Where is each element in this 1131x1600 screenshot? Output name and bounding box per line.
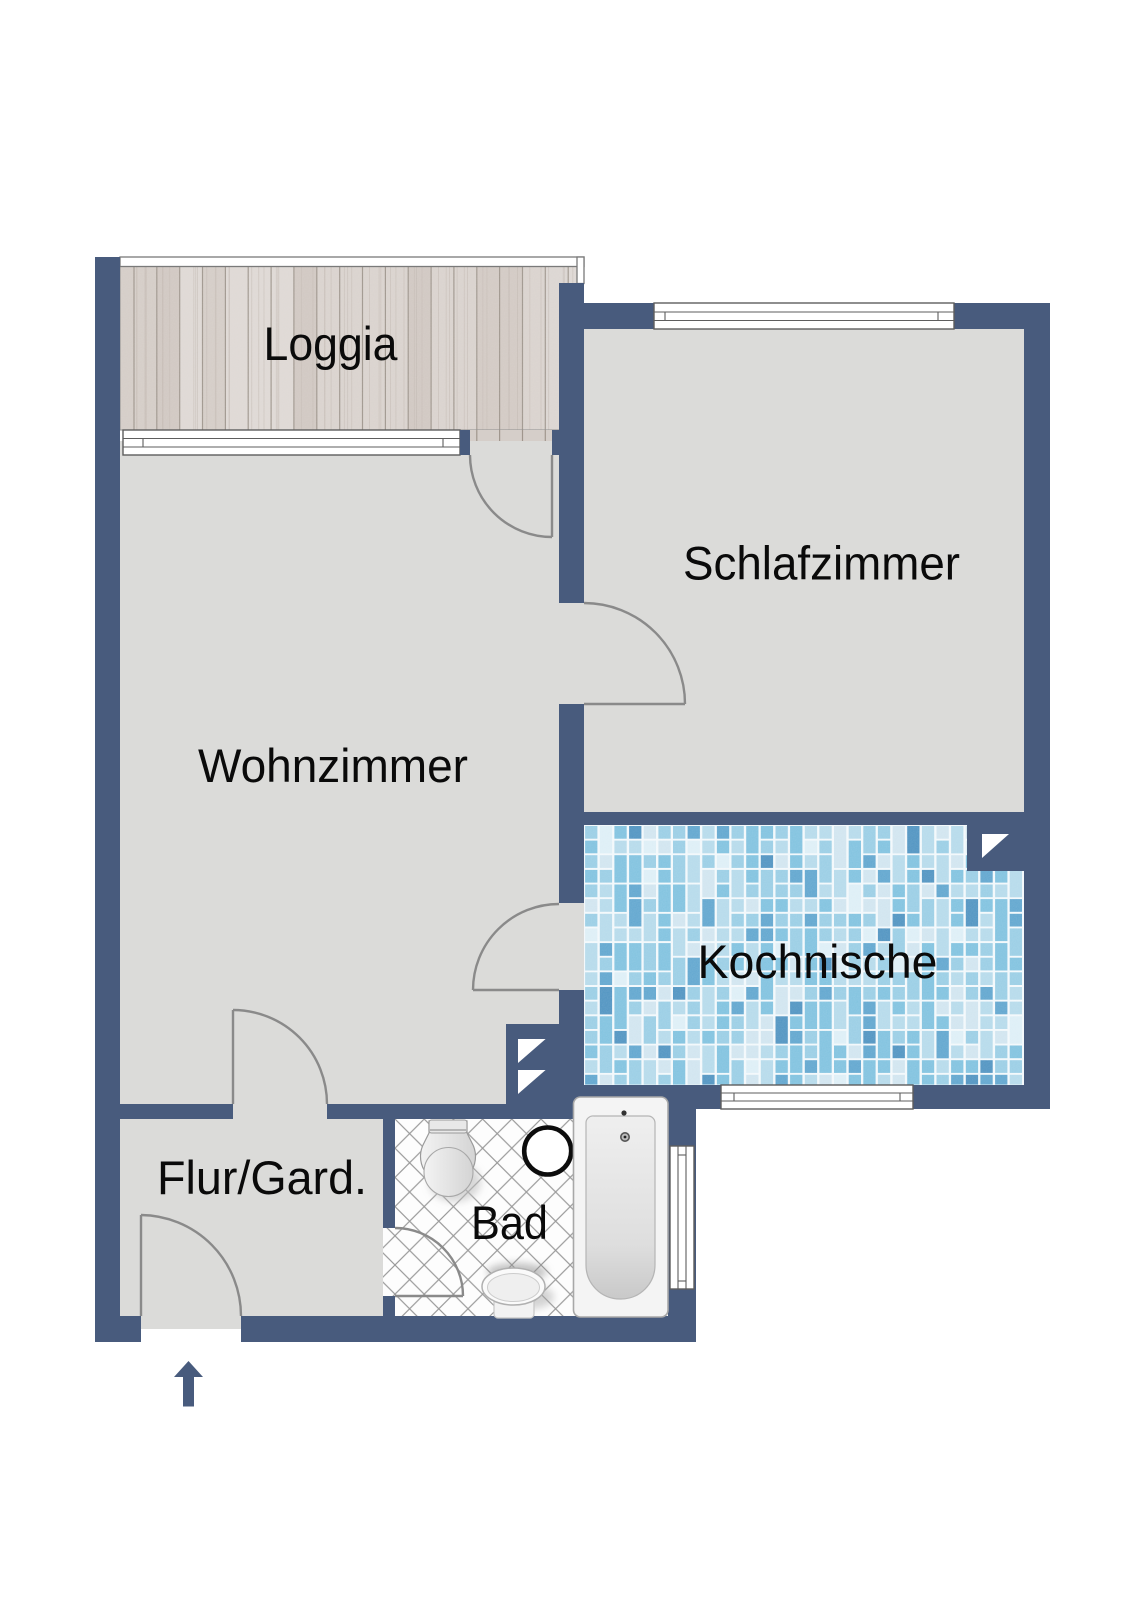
svg-text:Wohnzimmer: Wohnzimmer (198, 739, 468, 792)
svg-text:Loggia: Loggia (264, 317, 399, 370)
svg-text:Schlafzimmer: Schlafzimmer (683, 537, 960, 590)
svg-text:Kochnische: Kochnische (698, 935, 938, 988)
svg-text:Bad: Bad (471, 1196, 548, 1249)
svg-text:Flur/Gard.: Flur/Gard. (157, 1151, 367, 1204)
